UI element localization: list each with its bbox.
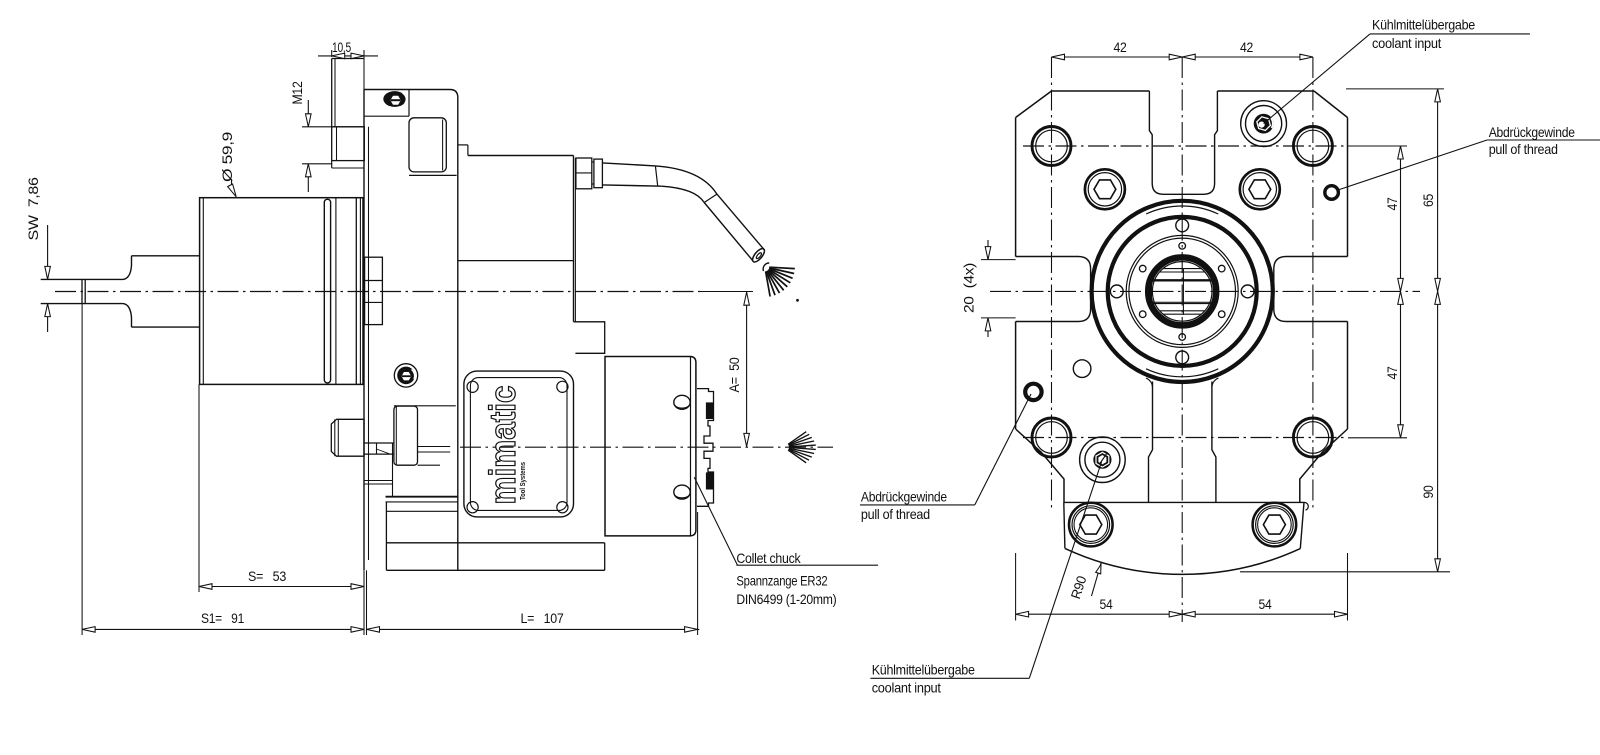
- svg-text:Spannzange ER32: Spannzange ER32: [736, 573, 827, 589]
- svg-text:42: 42: [1240, 40, 1253, 55]
- svg-text:Collet chuck: Collet chuck: [736, 550, 801, 566]
- svg-text:coolant input: coolant input: [872, 680, 941, 696]
- svg-text:Tool Systems: Tool Systems: [518, 462, 527, 500]
- svg-text:54: 54: [1100, 597, 1114, 612]
- svg-text:Abdrückgewinde: Abdrückgewinde: [861, 489, 947, 505]
- svg-text:47: 47: [1385, 367, 1400, 380]
- svg-text:S= 53: S= 53: [248, 569, 286, 584]
- svg-text:Kühlmittelübergabe: Kühlmittelübergabe: [872, 662, 975, 678]
- svg-text:Kühlmittelübergabe: Kühlmittelübergabe: [1372, 17, 1475, 33]
- svg-text:10,5: 10,5: [332, 40, 351, 55]
- svg-text:65: 65: [1421, 194, 1436, 207]
- svg-text:20 (4x): 20 (4x): [962, 263, 977, 313]
- svg-text:M12: M12: [290, 82, 305, 105]
- svg-text:54: 54: [1259, 597, 1273, 612]
- svg-text:SW 7,86: SW 7,86: [26, 178, 41, 241]
- svg-text:DIN6499 (1-20mm): DIN6499 (1-20mm): [736, 591, 836, 607]
- svg-text:L= 107: L= 107: [521, 611, 564, 626]
- svg-text:pull of thread: pull of thread: [861, 506, 930, 522]
- svg-text:Ø 59,9: Ø 59,9: [220, 132, 235, 182]
- svg-text:mimatic: mimatic: [482, 386, 523, 505]
- svg-text:pull of thread: pull of thread: [1489, 141, 1558, 157]
- svg-text:90: 90: [1421, 486, 1436, 499]
- svg-text:A= 50: A= 50: [727, 358, 742, 393]
- svg-text:coolant input: coolant input: [1372, 35, 1441, 51]
- svg-text:47: 47: [1385, 198, 1400, 211]
- svg-text:S1= 91: S1= 91: [201, 611, 244, 626]
- svg-text:42: 42: [1114, 40, 1127, 55]
- svg-text:Abdrückgewinde: Abdrückgewinde: [1489, 124, 1575, 140]
